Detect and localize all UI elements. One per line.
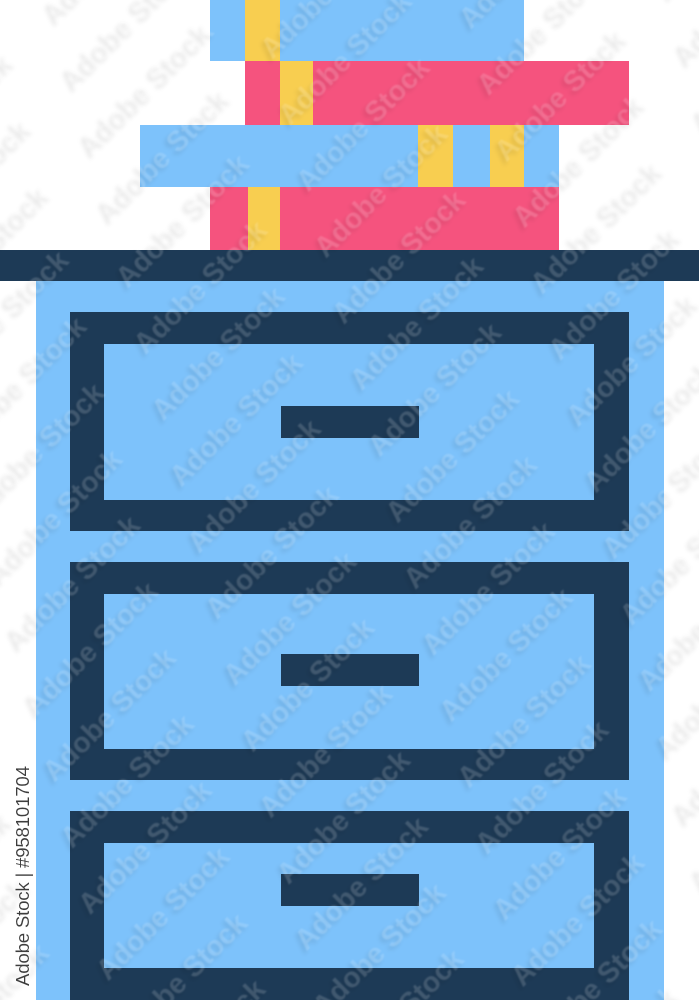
- svg-text:Adobe Stock | #958101704: Adobe Stock | #958101704: [12, 766, 33, 986]
- svg-text:Adobe Stock: Adobe Stock: [669, 0, 699, 71]
